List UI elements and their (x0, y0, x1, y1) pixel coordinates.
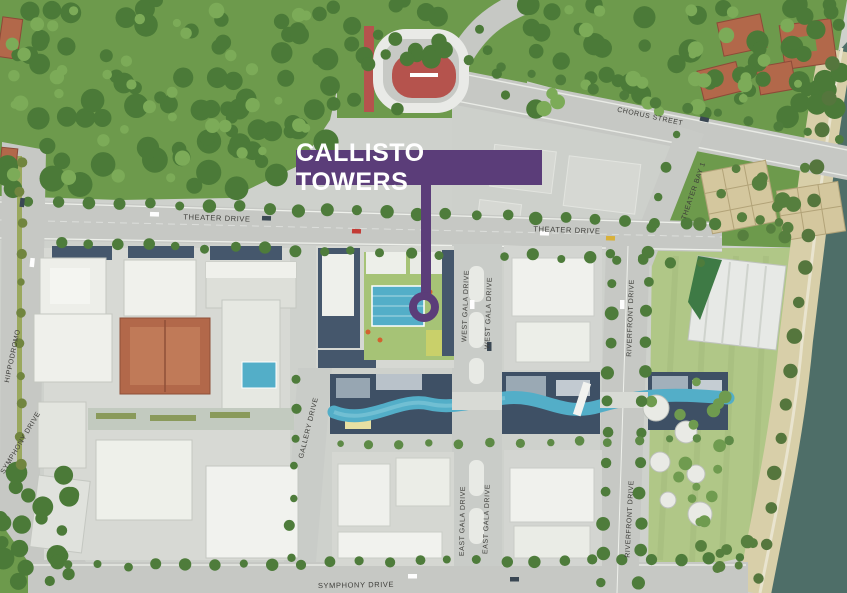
street-label-symphony-south: SYMPHONY DRIVE (318, 580, 394, 590)
location-marker-ring (409, 292, 439, 322)
banner-pointer-line (421, 184, 431, 294)
callisto-towers-banner: CALLISTO TOWERS (296, 150, 542, 185)
callisto-east-slab (442, 250, 454, 356)
banner-label: CALLISTO TOWERS (296, 139, 542, 197)
gala-canal-bridge (452, 392, 502, 410)
callisto-west-tower-roof (322, 254, 354, 316)
street-label-east-gala-1: EAST GALA DRIVE (459, 486, 467, 556)
track-marking (410, 73, 438, 77)
callisto-north-roof-1 (366, 252, 406, 274)
campus-pool (242, 362, 276, 388)
site-plan-image: CHORUS STREET THEATER DRIVE THEATER DRIV… (0, 0, 847, 593)
